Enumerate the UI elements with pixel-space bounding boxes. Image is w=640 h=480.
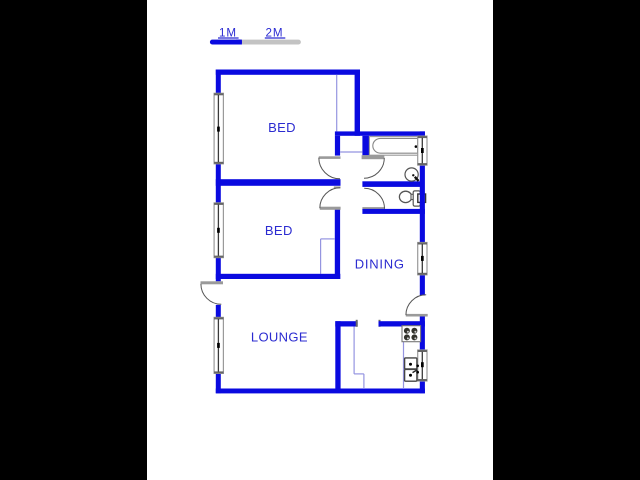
svg-text:LOUNGE: LOUNGE	[251, 329, 308, 344]
svg-text:DINING: DINING	[355, 257, 405, 272]
svg-text:BED: BED	[268, 120, 296, 135]
svg-text:BED: BED	[265, 223, 293, 238]
